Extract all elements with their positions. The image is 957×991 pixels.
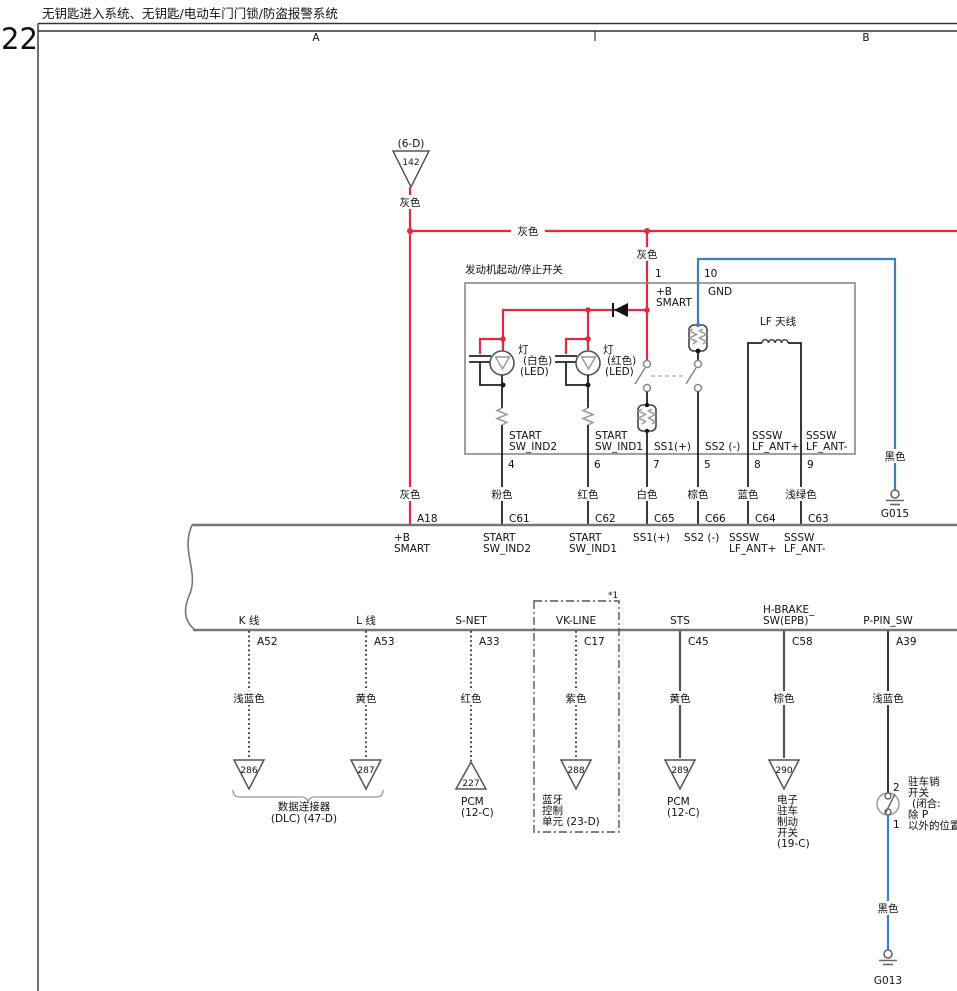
wire-color-label: 黑色 xyxy=(885,450,906,463)
connector-label: A18 xyxy=(417,513,438,525)
destination-label: 单元 (23-D) xyxy=(542,816,600,828)
triangle-ref: 288 xyxy=(567,766,584,776)
column-label-a: A xyxy=(312,32,320,44)
pin-number: 6 xyxy=(594,459,601,471)
ss2-switch: SS2 (-) xyxy=(686,283,740,454)
connector-label: C63 xyxy=(808,513,829,525)
junction-dot xyxy=(407,228,413,234)
diode-icon xyxy=(613,303,628,317)
triangle-ref: 290 xyxy=(775,766,792,776)
lf-antenna-label: LF 天线 xyxy=(760,315,797,328)
wire-color-label: 黄色 xyxy=(670,692,691,705)
connector-label: C66 xyxy=(705,513,726,525)
pin-number: 9 xyxy=(807,459,814,471)
bus-terminal: SW_IND2 xyxy=(483,543,531,555)
terminal-name: SW_IND1 xyxy=(595,441,643,453)
column-label-b: B xyxy=(862,32,869,44)
destination-label: (12-C) xyxy=(667,807,700,819)
connector-label: C62 xyxy=(595,513,616,525)
wire-color-label: 浅蓝色 xyxy=(872,692,904,705)
page-title: 无钥匙进入系统、无钥匙/电动车门门锁/防盗报警系统 xyxy=(42,6,338,21)
pin-number: 5 xyxy=(704,459,711,471)
triangle-ref: 287 xyxy=(357,766,374,776)
terminal-name: LF_ANT- xyxy=(806,441,848,453)
destination-label: 数据连接器 xyxy=(278,800,331,813)
box-to-bus-wires: 4 7 6 5 8 9 灰色 粉色 红色 白色 棕色 蓝色 浅绿色 A18 C6… xyxy=(397,454,829,525)
page-number: 22 xyxy=(1,22,38,56)
connector-label: C58 xyxy=(792,636,813,648)
wire-color-label: 棕色 xyxy=(688,488,709,501)
wire-color-label: 红色 xyxy=(578,488,599,501)
wire-color-label: 白色 xyxy=(637,488,658,501)
wire-color-label: 红色 xyxy=(461,692,482,705)
bus-terminal: VK-LINE xyxy=(556,615,596,627)
pin-number: 4 xyxy=(508,459,515,471)
bus-terminal: S-NET xyxy=(455,615,487,627)
wire-color-label: 粉色 xyxy=(492,488,513,501)
wire-color-label: 黑色 xyxy=(878,902,899,915)
bus-terminal: SW(EPB) xyxy=(763,615,808,627)
triangle-ref: 286 xyxy=(240,766,257,776)
connector-label: C45 xyxy=(688,636,709,648)
pin-number: 10 xyxy=(704,268,717,280)
ground-icon xyxy=(891,490,899,498)
terminal-name: SS1(+) xyxy=(654,441,691,453)
resistor-icon xyxy=(497,408,507,425)
connector-label: A33 xyxy=(479,636,500,648)
triangle-ref: 289 xyxy=(671,766,688,776)
terminal-name: LF_ANT+ xyxy=(752,441,799,453)
ground-wire-g015: 黑色 G015 xyxy=(698,259,910,520)
bus-terminal: K 线 xyxy=(239,614,260,627)
start-stop-switch-box: 发动机起动/停止开关 1 10 +B SMART GND xyxy=(465,263,855,454)
wire-color-label: 灰色 xyxy=(400,488,421,501)
switch-contact xyxy=(644,361,651,368)
control-unit-band: +B SMART START SW_IND2 START SW_IND1 SS1… xyxy=(185,525,957,630)
break-squiggle xyxy=(185,525,195,630)
wire-color-label: 灰色 xyxy=(518,225,539,238)
connector-142: (6-D) 142 xyxy=(393,138,429,187)
pin-number: 1 xyxy=(655,268,662,280)
park-pin-switch: 2 1 驻车销 开关 (闭合: 除 P 以外的位置) 黑色 G013 xyxy=(873,775,957,987)
led-lamp-icon xyxy=(490,351,514,375)
wire-color-label: 灰色 xyxy=(637,248,658,261)
switch-contact xyxy=(695,361,702,368)
connector-142-ref: (6-D) xyxy=(398,138,425,150)
triangle-ref: 227 xyxy=(462,779,479,789)
lamp-label: (LED) xyxy=(605,366,634,378)
diagram-canvas: 22 无钥匙进入系统、无钥匙/电动车门门锁/防盗报警系统 A B (6-D) 1… xyxy=(0,0,957,991)
lf-antenna: LF 天线 SSSW LF_ANT+ SSSW LF_ANT- xyxy=(748,315,848,454)
connector-label: A52 xyxy=(257,636,278,648)
lamp-label: (LED) xyxy=(520,366,549,378)
option-note: *1 xyxy=(608,591,618,601)
connector-label: C64 xyxy=(755,513,776,525)
bus-terminal: STS xyxy=(670,615,690,627)
wire-color-label: 紫色 xyxy=(566,692,587,705)
bus-terminal: L 线 xyxy=(356,614,376,627)
terminal-name: GND xyxy=(708,286,732,298)
connector-label: A53 xyxy=(374,636,395,648)
junction-dot xyxy=(644,228,650,234)
led-lamp-icon xyxy=(576,351,600,375)
bus-terminal: P-PIN_SW xyxy=(863,615,913,627)
pin-number: 1 xyxy=(893,819,900,831)
switch-label: 以外的位置) xyxy=(908,819,957,832)
wire-color-label: 浅绿色 xyxy=(785,488,817,501)
wiring-diagram-page: 22 无钥匙进入系统、无钥匙/电动车门门锁/防盗报警系统 A B (6-D) 1… xyxy=(0,0,957,991)
wire-color-label: 浅蓝色 xyxy=(233,692,265,705)
wire-color-label: 灰色 xyxy=(400,196,421,209)
pin-number: 2 xyxy=(893,782,900,794)
connector-label: C17 xyxy=(584,636,605,648)
terminal-name: SMART xyxy=(656,297,692,309)
bus-terminal: SS2 (-) xyxy=(684,532,719,544)
pin-number: 8 xyxy=(754,459,761,471)
wire-color-label: 黄色 xyxy=(356,692,377,705)
resistor-icon xyxy=(583,408,593,425)
destination-label: (DLC) (47-D) xyxy=(271,813,337,825)
wire-color-label: 棕色 xyxy=(774,692,795,705)
terminal-name: SW_IND2 xyxy=(509,441,557,453)
pin-number: 7 xyxy=(653,459,660,471)
connector-label: C65 xyxy=(654,513,675,525)
connector-142-triangle xyxy=(393,151,429,187)
bus-terminal: SS1(+) xyxy=(633,532,670,544)
ground-icon xyxy=(884,950,892,958)
connector-label: A39 xyxy=(896,636,917,648)
switch-blade xyxy=(686,368,696,384)
switch-contact xyxy=(885,793,891,799)
bus-terminal: LF_ANT- xyxy=(784,543,826,555)
bus-terminal: LF_ANT+ xyxy=(729,543,776,555)
box-title: 发动机起动/停止开关 xyxy=(465,263,564,276)
bus-terminal: SMART xyxy=(394,543,430,555)
switch-blade xyxy=(635,368,645,384)
connector-142-num: 142 xyxy=(402,158,419,168)
ground-name: G013 xyxy=(874,975,902,987)
ss1-switch: SS1(+) xyxy=(635,361,691,455)
terminal-name: SS2 (-) xyxy=(705,441,740,453)
inductor-coil-icon xyxy=(762,340,788,343)
wire-color-label: 蓝色 xyxy=(738,488,759,501)
connector-label: C61 xyxy=(509,513,530,525)
destination-label: (12-C) xyxy=(461,807,494,819)
destination-label: (19-C) xyxy=(777,838,810,850)
ground-name: G015 xyxy=(881,508,909,520)
bus-terminal: SW_IND1 xyxy=(569,543,617,555)
